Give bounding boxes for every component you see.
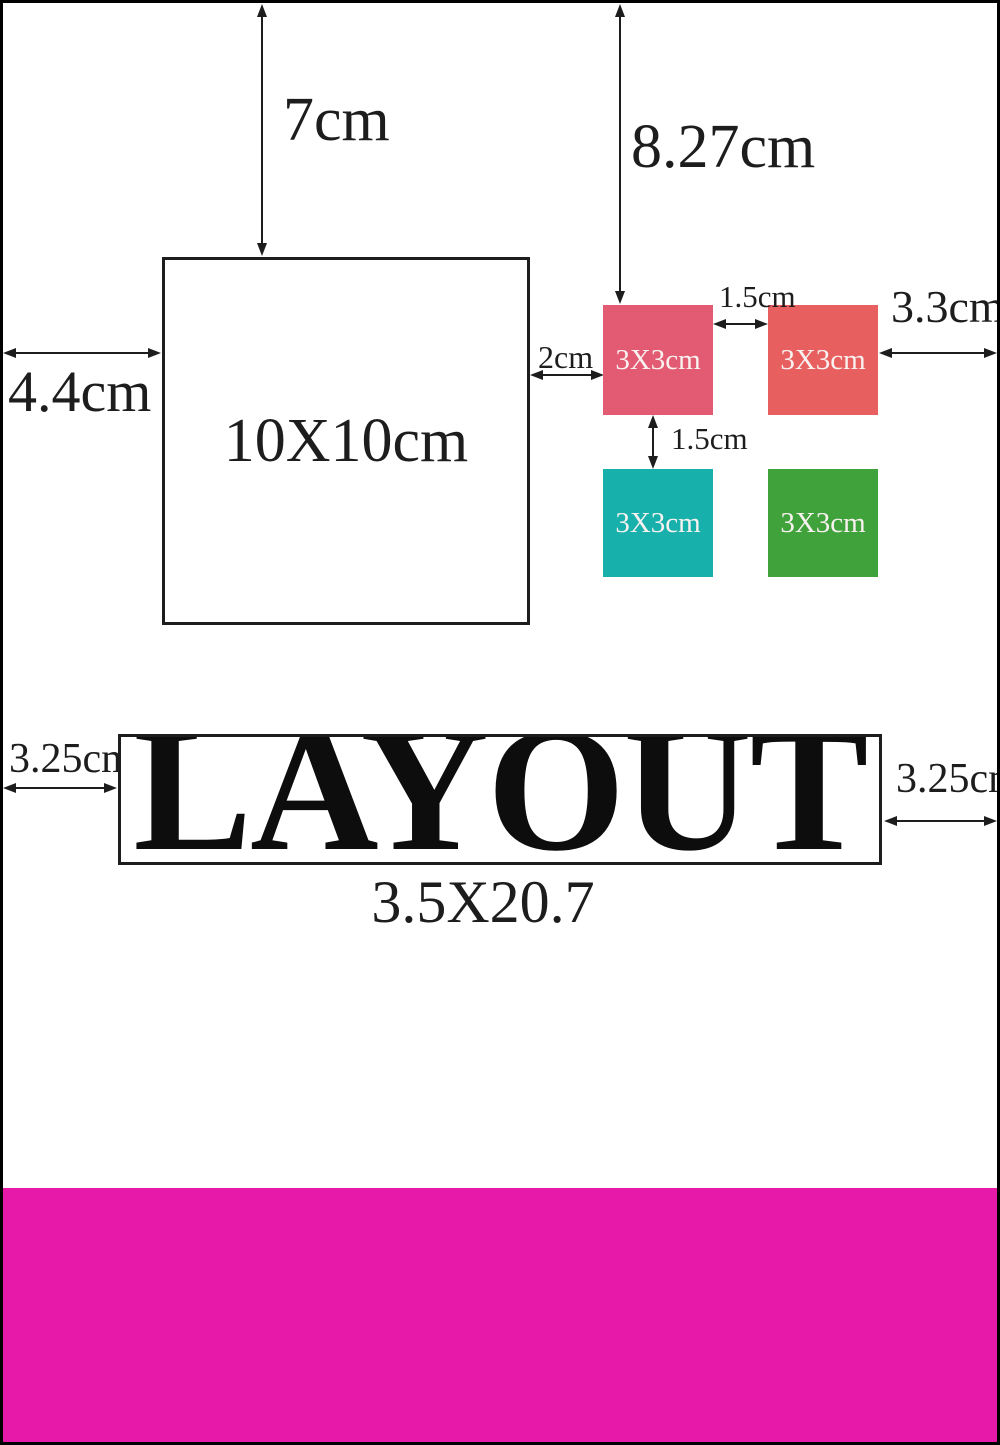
arrowhead-down-icon <box>615 291 625 304</box>
small-square-bottom-right: 3X3cm <box>768 469 878 577</box>
bottom-color-bar <box>3 1188 997 1442</box>
dim-label-3-25cm-right: 3.25cm <box>896 758 1000 800</box>
small-square-top-right: 3X3cm <box>768 305 878 415</box>
dim-label-3-25cm-left: 3.25cm <box>9 738 134 780</box>
arrowhead-right-icon <box>104 783 117 793</box>
small-square-top-left: 3X3cm <box>603 305 713 415</box>
dim-label-3-3cm: 3.3cm <box>891 284 1000 330</box>
layout-diagram: 7cm 8.27cm 4.4cm 10X10cm 2cm 3X3cm 3X3cm… <box>0 0 1000 1445</box>
main-square-label: 10X10cm <box>224 410 469 472</box>
small-square-bottom-left: 3X3cm <box>603 469 713 577</box>
small-square-label: 3X3cm <box>780 509 865 538</box>
dim-label-7cm: 7cm <box>283 89 390 151</box>
layout-title-text: LAYOUT <box>121 734 879 865</box>
layout-title-box: LAYOUT <box>118 734 882 865</box>
main-square: 10X10cm <box>162 257 530 625</box>
dim-label-1-5cm-vertical: 1.5cm <box>671 423 748 454</box>
small-square-label: 3X3cm <box>615 346 700 375</box>
layout-size-label: 3.5X20.7 <box>333 872 633 932</box>
small-square-label: 3X3cm <box>615 509 700 538</box>
dim-label-1-5cm-horizontal: 1.5cm <box>719 281 796 312</box>
dim-label-2cm: 2cm <box>538 341 593 373</box>
arrowhead-down-icon <box>257 243 267 256</box>
arrowhead-right-icon <box>984 816 997 826</box>
arrowhead-down-icon <box>648 456 658 469</box>
dim-label-8-27cm: 8.27cm <box>631 116 815 178</box>
dim-label-4-4cm: 4.4cm <box>8 363 151 421</box>
small-square-label: 3X3cm <box>780 346 865 375</box>
arrowhead-right-icon <box>755 319 768 329</box>
arrowhead-right-icon <box>984 348 997 358</box>
arrowhead-right-icon <box>148 348 161 358</box>
